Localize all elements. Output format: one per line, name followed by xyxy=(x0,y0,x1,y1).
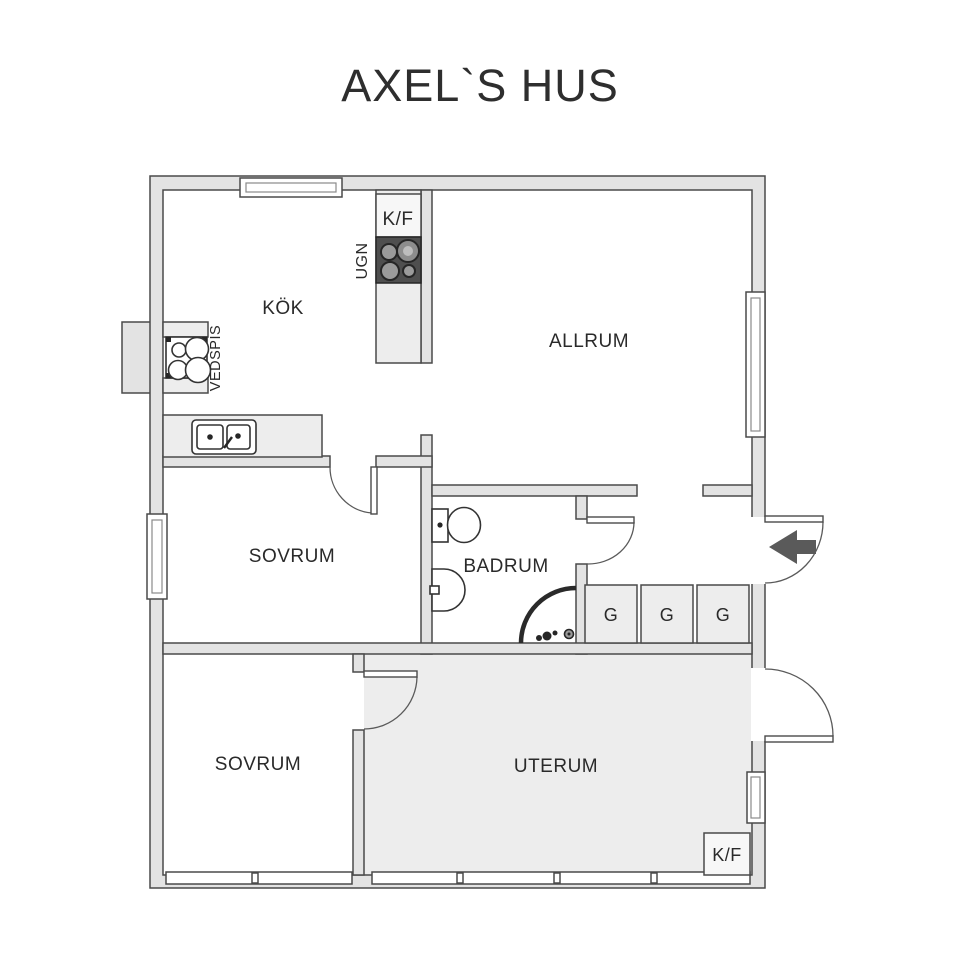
label-wardrobe-3: G xyxy=(716,605,731,625)
room-label-livingroom: ALLRUM xyxy=(549,331,629,352)
label-fridge-freezer-top: K/F xyxy=(382,209,413,230)
chimney xyxy=(122,322,154,393)
floor-plan: KÖK ALLRUM SOVRUM BADRUM SOVRUM UTERUM K… xyxy=(0,0,960,960)
window-bedroom1-left xyxy=(147,514,167,599)
window-band-bedroom2-bottom xyxy=(166,872,352,884)
window-livingroom-right xyxy=(746,292,765,437)
label-wood-stove: VEDSPIS xyxy=(208,325,224,391)
room-label-kitchen: KÖK xyxy=(262,298,304,319)
window-sunroom-right xyxy=(747,772,765,823)
room-label-bedroom1: SOVRUM xyxy=(249,546,335,567)
wood-stove-icon xyxy=(163,322,211,393)
door-sunroom-exterior xyxy=(765,669,833,742)
sunroom-door-gap xyxy=(751,668,766,741)
door-bathroom xyxy=(587,517,634,564)
label-wardrobe-1: G xyxy=(604,605,619,625)
room-label-bathroom: BADRUM xyxy=(463,556,548,577)
door-bedroom1 xyxy=(330,467,377,514)
window-kitchen-top xyxy=(240,178,342,197)
label-fridge-freezer-sunroom: K/F xyxy=(712,845,742,865)
floor-plan-page: AXEL`S HUS xyxy=(0,0,960,960)
kitchen-counter xyxy=(163,415,322,457)
label-oven: UGN xyxy=(354,242,371,279)
kitchen-sink-icon xyxy=(192,420,256,454)
room-label-bedroom2: SOVRUM xyxy=(215,754,301,775)
label-wardrobe-2: G xyxy=(660,605,675,625)
shower-icon xyxy=(521,588,576,643)
toilet-icon xyxy=(432,508,481,543)
window-band-sunroom-bottom xyxy=(372,872,750,884)
entrance-arrow-icon xyxy=(769,530,816,564)
room-label-sunroom: UTERUM xyxy=(514,756,598,777)
entrance-door-gap xyxy=(751,517,766,584)
washbasin-icon xyxy=(430,569,465,611)
